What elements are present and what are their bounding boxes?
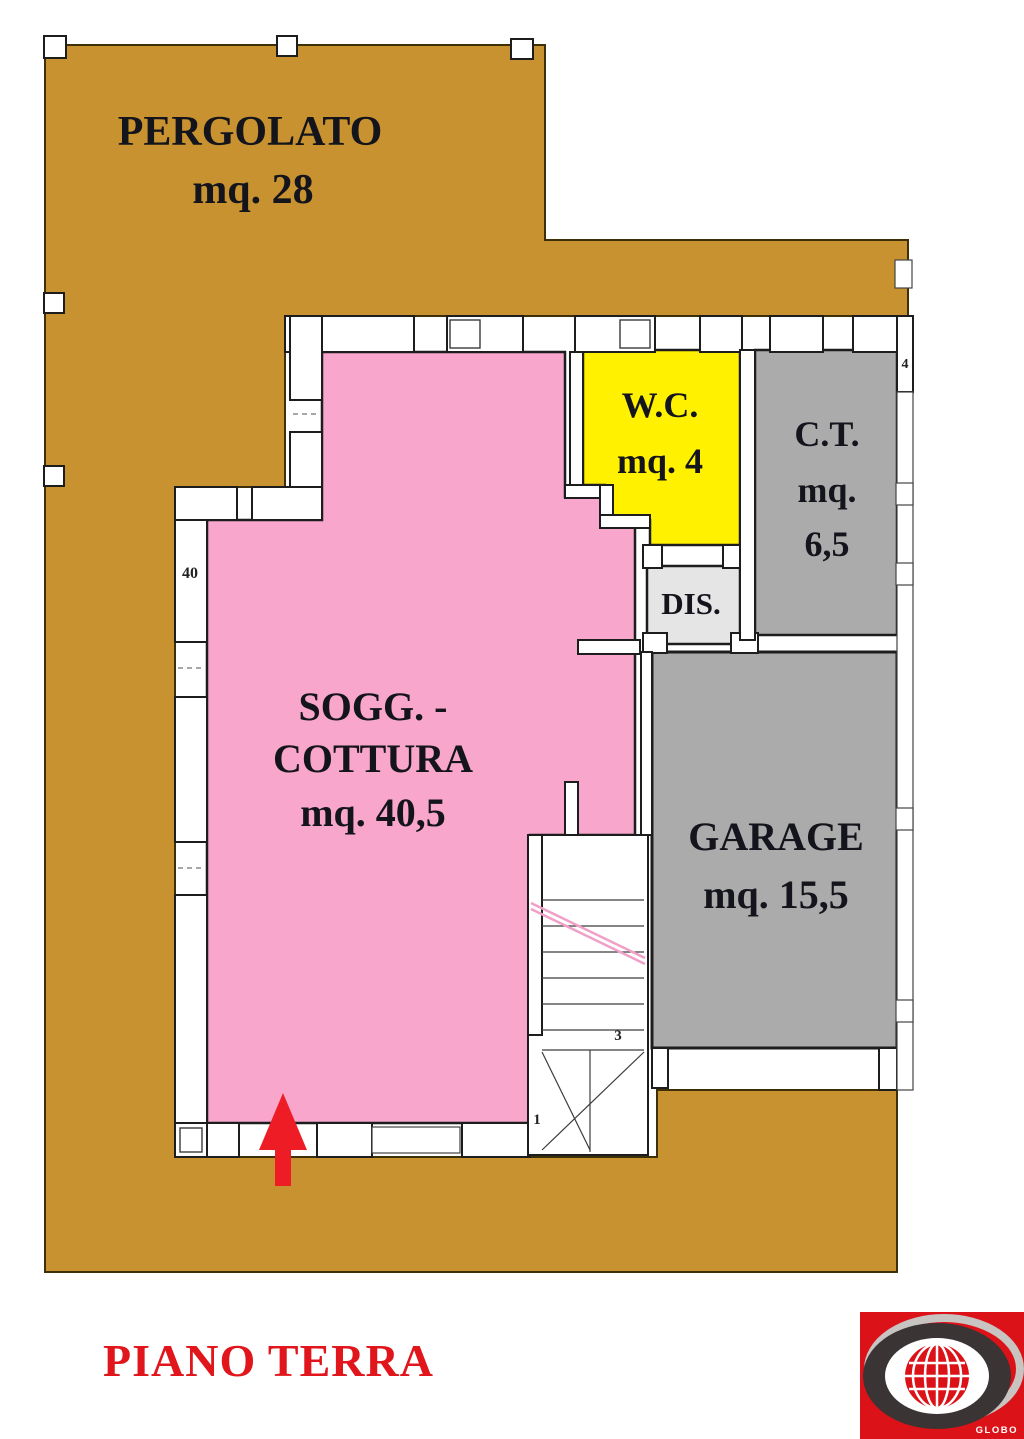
- wall-segment: [652, 1048, 668, 1088]
- wall-segment: [207, 1123, 239, 1157]
- window-notch: [896, 1000, 913, 1022]
- window-notch: [895, 260, 912, 288]
- stair-step-number: 3: [614, 1028, 622, 1044]
- pergolato-area-label: mq. 28: [192, 167, 313, 213]
- window-frame: [372, 1127, 460, 1153]
- wall-stub: [565, 782, 578, 835]
- wall-dimension-label: 40: [182, 565, 198, 582]
- soggiorno-area-label: mq. 40,5: [300, 790, 446, 835]
- wall-segment: [462, 1123, 530, 1157]
- floor-plan-page: 1 3 PERGOLATO mq. 28 SOGG. - COTTURA mq.…: [0, 0, 1024, 1439]
- wall-segment: [290, 432, 322, 487]
- window-dimension-label: 4: [902, 357, 909, 372]
- window-notch: [896, 808, 913, 830]
- wc-label: W.C.: [622, 385, 699, 425]
- stair-left-wall: [528, 835, 542, 1035]
- wall-segment: [641, 652, 652, 835]
- ct-label: mq.: [797, 470, 856, 510]
- dis-label: DIS.: [661, 586, 720, 621]
- stair-enclosure: [528, 835, 648, 1155]
- wall-segment: [175, 697, 207, 842]
- pergola-post: [277, 36, 297, 56]
- floor-plan-drawing: 1 3 PERGOLATO mq. 28 SOGG. - COTTURA mq.…: [0, 0, 1024, 1439]
- wc-area-label: mq. 4: [617, 441, 703, 481]
- pergola-post: [44, 36, 66, 58]
- staircase: 1 3: [528, 835, 648, 1155]
- wall-pier-detail: [180, 1128, 202, 1152]
- window-notch: [896, 483, 913, 505]
- pergola-post: [44, 293, 64, 313]
- wall-segment: [578, 640, 640, 654]
- pergolato-label: PERGOLATO: [118, 109, 383, 155]
- garage-area-label: mq. 15,5: [703, 872, 849, 917]
- wall-pier-detail: [450, 320, 480, 348]
- window-notch: [896, 563, 913, 585]
- wall-segment: [175, 487, 237, 520]
- logo-brand-label: GLOBO: [976, 1425, 1018, 1436]
- wall-segment: [770, 316, 823, 352]
- wall-segment: [853, 316, 899, 352]
- soggiorno-label: COTTURA: [273, 736, 473, 781]
- ct-label: C.T.: [794, 414, 859, 454]
- wall-segment: [643, 545, 662, 568]
- wall-segment: [700, 316, 742, 352]
- soggiorno-label: SOGG. -: [299, 684, 448, 729]
- pergola-post: [511, 39, 533, 59]
- garage-label: GARAGE: [688, 814, 864, 859]
- agency-logo: GLOBO: [860, 1312, 1024, 1439]
- wall-segment: [897, 316, 913, 392]
- page-title: PIANO TERRA: [103, 1335, 434, 1386]
- wall-segment: [252, 487, 322, 520]
- wall-segment: [322, 316, 414, 352]
- wall-segment: [740, 350, 755, 640]
- wall-segment: [317, 1123, 372, 1157]
- ct-area-label: 6,5: [805, 524, 850, 564]
- pergola-post: [44, 466, 64, 486]
- wall-segment: [643, 633, 667, 653]
- stair-step-number: 1: [533, 1112, 541, 1128]
- wall-segment: [570, 352, 583, 497]
- wall-segment: [290, 316, 322, 400]
- wall-segment: [879, 1048, 897, 1090]
- wall-pier-detail: [620, 320, 650, 348]
- wall-segment: [175, 895, 207, 1123]
- wall-segment: [600, 515, 650, 528]
